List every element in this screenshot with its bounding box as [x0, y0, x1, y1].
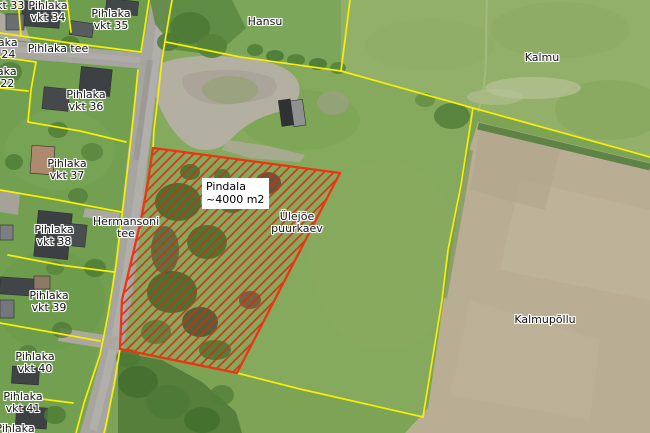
- label-kalmu: Kalmu: [525, 52, 560, 64]
- label-pihlaka-vkt-40: Pihlakavkt 40: [15, 351, 54, 375]
- label-pihlaka-vkt-34: Pihlakavkt 34: [28, 0, 67, 24]
- label-pihlaka-tee: Pihlaka tee: [28, 43, 88, 55]
- label-hermansoni-tee: Hermansonitee: [93, 216, 159, 240]
- label-pihlaka-vkt-22: Pihlakavkt 22: [0, 66, 17, 90]
- label-pihlaka-vkt-33: Pihlakavkt 33: [0, 0, 27, 12]
- area-measurement-box: Pindala ~4000 m2: [202, 178, 269, 209]
- label-kalmupollu: Kalmupõllu: [514, 314, 575, 326]
- label-pihlaka-vkt-36: Pihlakavkt 36: [66, 89, 105, 113]
- label-pihlaka-vkt-35: Pihlakavkt 35: [91, 8, 130, 32]
- measurement-label: Pindala: [206, 180, 264, 193]
- label-hansu: Hansu: [248, 16, 283, 28]
- label-pihlaka-vkt-39: Pihlakavkt 39: [29, 290, 68, 314]
- label-pihlaka-vkt-38: Pihlakavkt 38: [34, 224, 73, 248]
- label-pihlaka-vkt-24: Pihlakavkt 24: [0, 37, 18, 61]
- aerial-map-viewport[interactable]: Pihlakavkt 33 Pihlakavkt 34 Pihlakavkt 3…: [0, 0, 650, 433]
- label-pihlaka-vkt-42: Pihlakavkt 42: [0, 423, 35, 433]
- measurement-value: ~4000 m2: [206, 193, 264, 206]
- label-ulejoe-puurkaev: Ülejõepuurkaev: [271, 211, 323, 235]
- label-pihlaka-vkt-37: Pihlakavkt 37: [47, 158, 86, 182]
- label-pihlaka-vkt-41: Pihlakavkt 41: [3, 391, 42, 415]
